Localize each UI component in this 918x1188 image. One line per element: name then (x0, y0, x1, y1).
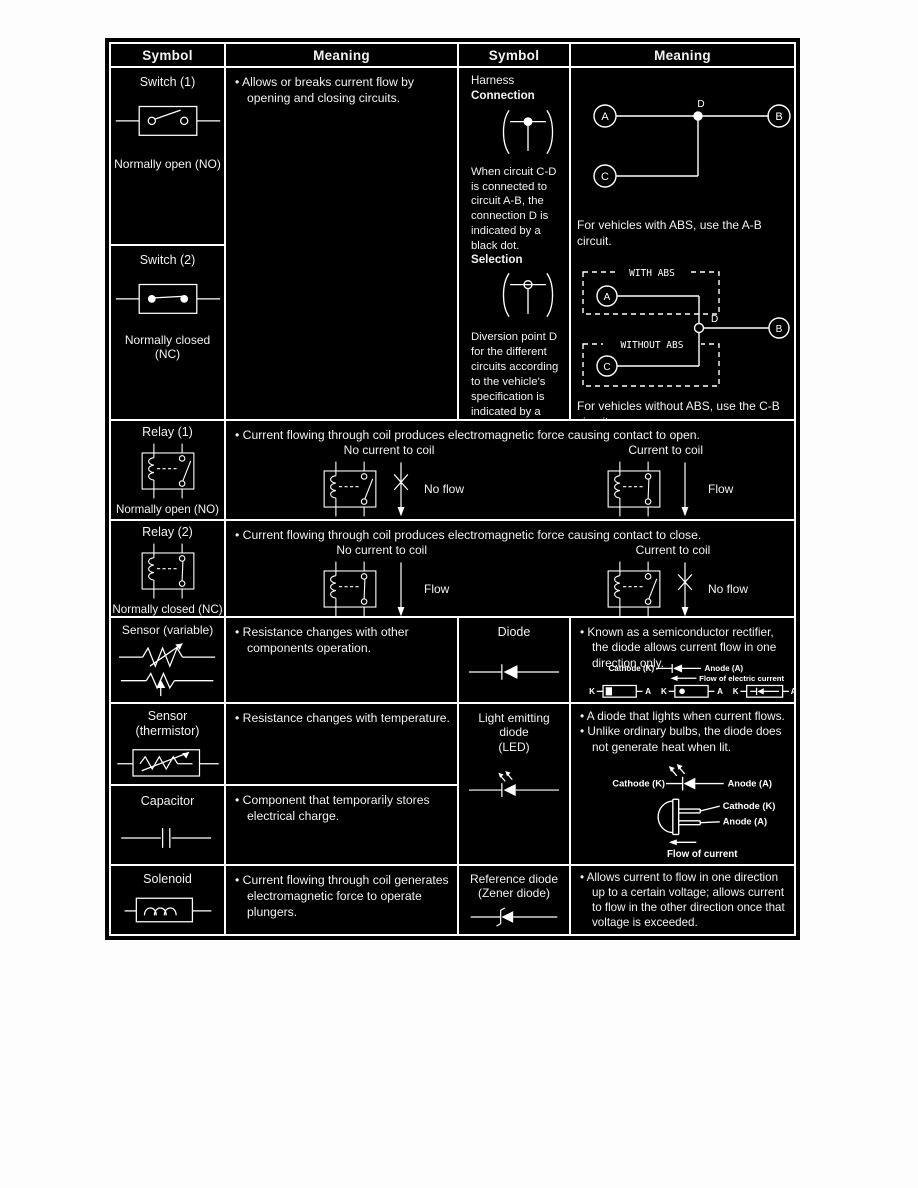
relay1-caption: Normally open (NO) (116, 503, 219, 516)
relay-contact-open-icon (314, 460, 386, 518)
relay1-current-group: Current to coil (598, 443, 733, 519)
no-flow-arrow-icon (392, 459, 410, 519)
cell-switch2-symbol: Switch (2) Normally closed (NC) (110, 245, 225, 420)
node-d-label: D (711, 314, 718, 325)
cell-capacitor-meaning: • Component that temporarily stores elec… (225, 785, 458, 865)
led-meaning-text1: • A diode that lights when current flows… (571, 704, 794, 724)
solenoid-title: Solenoid (143, 872, 192, 887)
header-meaning-right: Meaning (570, 43, 795, 67)
selection-icon (495, 269, 561, 321)
header-label: Meaning (313, 48, 370, 63)
cell-relay2-symbol: Relay (2) Normally closed (NC) (110, 520, 225, 617)
capacitor-icon (114, 823, 222, 853)
cell-led-symbol: Light emitting diode (LED) (458, 703, 570, 865)
led-polarity-diagram-icon: Cathode (K) Anode (A) Cathode (K) (575, 762, 795, 860)
thermistor-title-line2: (thermistor) (136, 724, 200, 739)
table-grid: Symbol Meaning Symbol Meaning Switch (1)… (109, 42, 796, 936)
abs-selection-diagram-icon: WITH ABS A D B WITHOUT ABS C (577, 260, 792, 392)
led-icon (462, 766, 566, 802)
relay1-nocurrent-group: No current to coil (314, 443, 464, 519)
zener-title-line2: (Zener diode) (478, 886, 550, 900)
selection-desc: Diversion point D for the different circ… (465, 330, 565, 420)
cell-solenoid-meaning: • Current flowing through coil generates… (225, 865, 458, 935)
sensor-variable-title: Sensor (variable) (122, 623, 213, 637)
selection-title: Selection (465, 252, 565, 267)
node-d-label: D (697, 99, 704, 110)
diode-polarity-diagram-icon: Cathode (K) Anode (A) Flow of electric c… (577, 662, 795, 700)
cell-relay1-symbol: Relay (1) Normally open (NO) (110, 420, 225, 520)
relay2-title: Relay (2) (142, 525, 193, 540)
cell-relay2-meaning: • Current flowing through coil produces … (225, 520, 795, 617)
cell-abs-diagrams: A D B C For vehicles with ABS, use the A… (570, 67, 795, 420)
no-flow-arrow-icon (676, 559, 694, 617)
cell-switch-meaning: • Allows or breaks current flow by openi… (225, 67, 458, 420)
solenoid-icon (122, 891, 214, 929)
led-title-line3: (LED) (498, 740, 529, 754)
switch-normally-open-icon (114, 99, 222, 141)
led-cathode-label: Cathode (K) (612, 779, 665, 789)
diode-anode-label: Anode (A) (705, 664, 744, 673)
header-label: Symbol (142, 48, 193, 63)
flow-arrow-icon (392, 559, 410, 617)
relay2-noflow-text: No flow (708, 582, 748, 596)
header-meaning-left: Meaning (225, 43, 458, 67)
pkg3-a-label: A (791, 687, 795, 696)
switch2-caption: Normally closed (NC) (111, 333, 224, 361)
cell-switch1-symbol: Switch (1) Normally open (NO) (110, 67, 225, 245)
relay-contact-closed-icon (314, 560, 386, 617)
thermistor-title-line1: Sensor (148, 709, 188, 724)
led-flow-label: Flow of current (667, 849, 738, 860)
cell-harness-selection: Harness Connection When circuit C-D is c… (458, 67, 570, 420)
node-a-label: A (604, 292, 611, 303)
harness-title-line1: Harness (465, 73, 565, 88)
pkg1-k-label: K (589, 687, 595, 696)
capacitor-meaning-text: • Component that temporarily stores elec… (226, 786, 457, 825)
solenoid-meaning-text: • Current flowing through coil generates… (226, 866, 457, 921)
relay1-meaning-text: • Current flowing through coil produces … (226, 421, 794, 444)
cell-thermistor-meaning: • Resistance changes with temperature. (225, 703, 458, 785)
relay-normally-open-icon (131, 442, 205, 500)
thermistor-icon (113, 741, 223, 783)
switch-meaning-text: • Allows or breaks current flow by openi… (226, 68, 457, 107)
cell-sensor-variable-meaning: • Resistance changes with other componen… (225, 617, 458, 703)
relay-contact-closed-icon (598, 460, 670, 518)
relay2-caption: Normally closed (NC) (112, 603, 222, 616)
zener-diode-icon (464, 904, 564, 930)
relay2-nocurrent-group: No current to coil (314, 543, 449, 617)
zener-meaning-text: • Allows current to flow in one directio… (571, 866, 794, 930)
relay2-nocurrent-label: No current to coil (336, 543, 427, 557)
pkg2-a-label: A (717, 687, 723, 696)
led-pkg-anode-label: Anode (A) (723, 817, 767, 827)
node-b-label: B (775, 111, 782, 123)
wiring-symbol-table: Symbol Meaning Symbol Meaning Switch (1)… (105, 38, 800, 940)
relay-normally-closed-icon (131, 542, 205, 600)
header-label: Symbol (489, 48, 540, 63)
cell-capacitor-symbol: Capacitor (110, 785, 225, 865)
node-a-label: A (601, 111, 609, 123)
node-b-label: B (776, 324, 783, 335)
relay1-nocurrent-label: No current to coil (344, 443, 435, 457)
cell-diode-meaning: • Known as a semiconductor rectifier, th… (570, 617, 795, 703)
pkg1-a-label: A (645, 687, 651, 696)
relay-contact-open-icon (598, 560, 670, 617)
relay2-flow-text: Flow (424, 582, 449, 596)
relay2-current-label: Current to coil (636, 543, 711, 557)
node-c-label: C (601, 171, 609, 183)
header-symbol-left: Symbol (110, 43, 225, 67)
led-title-line1: Light emitting (478, 711, 549, 725)
relay1-current-label: Current to coil (628, 443, 703, 457)
diode-icon (462, 658, 566, 686)
header-label: Meaning (654, 48, 711, 63)
pkg2-k-label: K (661, 687, 667, 696)
sensor-variable-meaning-text: • Resistance changes with other componen… (226, 618, 457, 657)
flow-arrow-icon (676, 459, 694, 519)
cell-zener-meaning: • Allows current to flow in one directio… (570, 865, 795, 935)
without-abs-label: WITHOUT ABS (621, 340, 684, 351)
diode-title: Diode (498, 625, 531, 640)
led-anode-label: Anode (A) (728, 779, 772, 789)
zener-title-line1: Reference diode (470, 872, 558, 886)
switch-normally-closed-icon (114, 277, 222, 319)
diode-cathode-label: Cathode (K) (608, 664, 654, 673)
relay1-noflow-text: No flow (424, 482, 464, 496)
led-meaning-text2: • Unlike ordinary bulbs, the diode does … (571, 724, 794, 755)
cell-relay1-meaning: • Current flowing through coil produces … (225, 420, 795, 520)
relay2-meaning-text: • Current flowing through coil produces … (226, 521, 794, 544)
cell-led-meaning: • A diode that lights when current flows… (570, 703, 795, 865)
led-title-line2: diode (499, 725, 528, 739)
cell-zener-symbol: Reference diode (Zener diode) (458, 865, 570, 935)
relay1-flow-text: Flow (708, 482, 733, 496)
node-c-label: C (603, 362, 610, 373)
abs-circuit-diagram-icon: A D B C (577, 80, 792, 192)
relay1-title: Relay (1) (142, 425, 193, 440)
cell-diode-symbol: Diode (458, 617, 570, 703)
thermistor-meaning-text: • Resistance changes with temperature. (226, 704, 457, 727)
variable-resistor-icon (113, 639, 223, 697)
harness-desc: When circuit C-D is connected to circuit… (465, 165, 565, 254)
switch1-caption: Normally open (NO) (114, 157, 221, 171)
manual-page: Symbol Meaning Symbol Meaning Switch (1)… (0, 0, 918, 1188)
abs-with-caption: For vehicles with ABS, use the A-B circu… (577, 218, 792, 249)
capacitor-title: Capacitor (141, 794, 195, 809)
cell-thermistor-symbol: Sensor (thermistor) (110, 703, 225, 785)
cell-sensor-variable-symbol: Sensor (variable) (110, 617, 225, 703)
with-abs-label: WITH ABS (629, 268, 675, 279)
abs-without-caption: For vehicles without ABS, use the C-B ci… (577, 399, 795, 420)
harness-section: Harness Connection When circuit C-D is c… (465, 73, 565, 254)
cell-solenoid-symbol: Solenoid (110, 865, 225, 935)
selection-section: Selection Diversion point D for the diff… (465, 252, 565, 420)
harness-title-line2: Connection (465, 88, 565, 103)
relay2-current-group: Current to coil (598, 543, 748, 617)
led-pkg-cathode-label: Cathode (K) (723, 801, 776, 811)
switch2-title: Switch (2) (140, 253, 196, 268)
header-symbol-right: Symbol (458, 43, 570, 67)
harness-connection-icon (495, 106, 561, 158)
switch1-title: Switch (1) (140, 75, 196, 90)
pkg3-k-label: K (733, 687, 739, 696)
diode-flow-label: Flow of electric current (699, 674, 784, 683)
